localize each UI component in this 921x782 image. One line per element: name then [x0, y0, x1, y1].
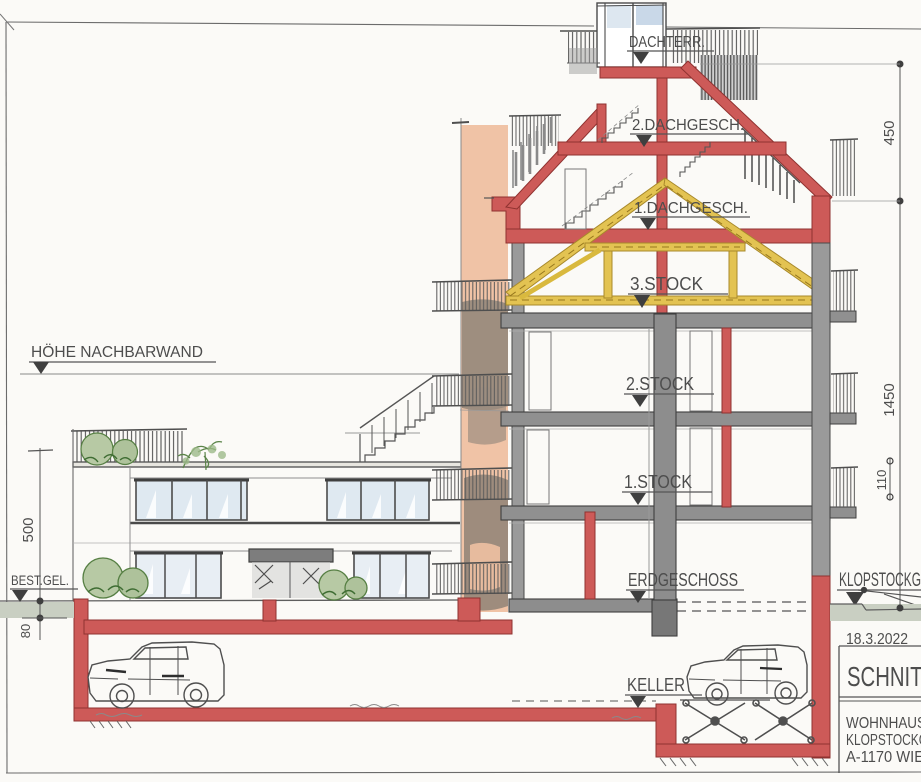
svg-text:110: 110 — [874, 470, 889, 491]
svg-text:SCHNITT: SCHNITT — [847, 661, 921, 692]
svg-text:1.DACHGESCH.: 1.DACHGESCH. — [634, 200, 748, 217]
svg-text:KLOPSTOCKG: KLOPSTOCKG — [846, 732, 921, 749]
svg-text:DACHTERR.: DACHTERR. — [629, 34, 705, 51]
svg-text:A-1170 WIE: A-1170 WIE — [846, 749, 921, 766]
svg-text:2.STOCK: 2.STOCK — [626, 374, 694, 394]
svg-text:KELLER: KELLER — [627, 675, 685, 695]
svg-text:1.STOCK: 1.STOCK — [624, 472, 692, 492]
svg-text:2.DACHGESCH.: 2.DACHGESCH. — [632, 117, 744, 134]
svg-text:WOHNHAUS: WOHNHAUS — [846, 715, 921, 732]
svg-text:HÖHE NACHBARWAND: HÖHE NACHBARWAND — [31, 343, 203, 361]
svg-text:18.3.2022: 18.3.2022 — [846, 631, 908, 648]
svg-text:3.STOCK: 3.STOCK — [630, 274, 703, 294]
svg-text:80: 80 — [18, 624, 33, 638]
svg-text:ERDGESCHOSS: ERDGESCHOSS — [628, 570, 738, 590]
svg-text:1450: 1450 — [881, 383, 898, 416]
svg-text:500: 500 — [20, 517, 37, 542]
svg-text:KLOPSTOCKG: KLOPSTOCKG — [839, 570, 921, 591]
svg-text:450: 450 — [881, 120, 898, 145]
